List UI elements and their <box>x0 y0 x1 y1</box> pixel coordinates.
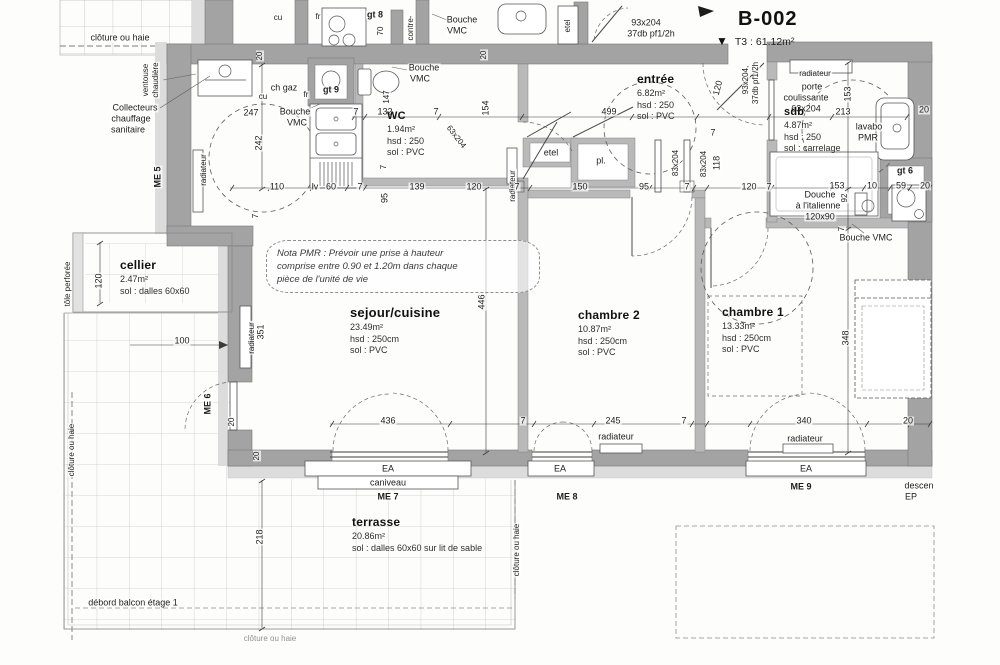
plan-annotation: Bouche <box>408 64 441 73</box>
room-spec: 10.87m² <box>578 324 640 336</box>
nota-pmr-note: Nota PMR : Prévoir une prise à hauteurco… <box>266 240 540 293</box>
room-title: chambre 1 <box>722 305 784 319</box>
plan-annotation: radiateur <box>798 70 832 78</box>
room-spec: hsd : 250 <box>637 100 675 112</box>
plan-annotation: débord balcon étage 1 <box>87 599 179 608</box>
annotation-layer: clôture ou haiecufrgt 870contre-BoucheVM… <box>0 0 1000 665</box>
plan-annotation: lavabo <box>855 123 884 132</box>
plan-annotation: 7 <box>838 226 846 232</box>
plan-annotation: gt 6 <box>896 167 914 176</box>
room-spec: hsd : 250cm <box>578 336 640 348</box>
nota-pmr-line: Nota PMR : Prévoir une prise à hauteur <box>277 247 529 260</box>
plan-annotation: 100 <box>173 337 190 346</box>
plan-annotation: 348 <box>842 329 851 346</box>
plan-annotation: 60 <box>325 183 337 192</box>
plan-annotation: VMC <box>446 27 468 36</box>
plan-annotation: lv <box>311 183 320 192</box>
plan-annotation: EP <box>904 493 918 502</box>
plan-annotation: 7 <box>519 417 526 426</box>
room-spec: sol : PVC <box>387 147 425 159</box>
plan-annotation: 446 <box>478 293 487 310</box>
plan-annotation: 499 <box>600 108 617 117</box>
plan-annotation: chaudière <box>152 61 160 98</box>
plan-annotation: clôture ou haie <box>243 635 297 643</box>
plan-annotation: radiateur <box>786 435 824 444</box>
room-title: entrée <box>637 72 675 86</box>
plan-annotation: EA <box>381 465 395 474</box>
room-label-wc: WC1.94m²hsd : 250sol : PVC <box>387 110 425 159</box>
room-spec: 4.87m² <box>784 120 841 132</box>
plan-annotation: cu <box>273 14 283 22</box>
plan-annotation: 150 <box>571 183 588 192</box>
plan-annotation: 7 <box>709 129 716 138</box>
plan-annotation: 20 <box>480 50 488 61</box>
room-spec: sol : PVC <box>637 111 675 123</box>
plan-annotation: coulissante <box>782 94 829 103</box>
plan-annotation: 70 <box>377 26 385 37</box>
plan-annotation: 7 <box>513 183 520 192</box>
plan-annotation: contre- <box>407 15 415 42</box>
room-spec: hsd : 250 <box>784 132 841 144</box>
plan-annotation: etel <box>543 149 560 158</box>
plan-annotation: ME 8 <box>555 493 578 502</box>
room-spec: 23.49m² <box>350 322 440 334</box>
plan-annotation: caniveau <box>369 479 407 488</box>
plan-annotation: 7 <box>252 213 260 219</box>
room-spec: 6.82m² <box>637 88 675 100</box>
plan-annotation: etel <box>564 19 572 34</box>
room-spec: sol : dalles 60x60 <box>120 286 190 298</box>
room-spec: 2.47m² <box>120 274 190 286</box>
room-spec: hsd : 250cm <box>350 334 440 346</box>
plan-annotation: 120x90 <box>804 213 836 222</box>
room-spec: 13.33m² <box>722 321 784 333</box>
plan-annotation: Collecteurs <box>111 104 158 113</box>
plan-annotation: 110 <box>269 183 285 192</box>
plan-annotation: porte <box>801 83 824 92</box>
plan-annotation: 37db pf1/2h <box>626 30 676 39</box>
plan-annotation: gt 9 <box>322 86 340 95</box>
plan-annotation: 83x204 <box>672 149 680 177</box>
room-label-chambre-2: chambre 210.87m²hsd : 250cmsol : PVC <box>578 308 640 359</box>
room-title: sejour/cuisine <box>350 305 440 320</box>
room-label-sejour-cuisine: sejour/cuisine23.49m²hsd : 250cmsol : PV… <box>350 305 440 357</box>
plan-annotation: Douche <box>803 191 836 200</box>
nota-pmr-line: comprise entre 0.90 et 1.20m dans chaque <box>277 260 529 273</box>
plan-annotation: Bouche <box>446 16 479 25</box>
room-spec: sol : PVC <box>578 347 640 359</box>
floor-plan-sheet: clôture ou haiecufrgt 870contre-BoucheVM… <box>0 0 1000 665</box>
plan-annotation: EA <box>799 465 813 474</box>
plan-annotation: 436 <box>379 417 396 426</box>
room-label-cellier: cellier2.47m²sol : dalles 60x60 <box>120 258 190 297</box>
plan-annotation: 20 <box>919 182 931 191</box>
plan-annotation: 247 <box>242 109 259 118</box>
plan-annotation: Bouche VMC <box>838 234 893 243</box>
plan-annotation: 245 <box>604 417 621 426</box>
plan-annotation: 218 <box>256 528 265 545</box>
triangle-marker: ▼ <box>716 34 728 48</box>
plan-annotation: 83x204 <box>700 150 708 178</box>
plan-annotation: 242 <box>255 134 264 151</box>
plan-annotation: 120 <box>465 183 482 192</box>
nota-pmr-line: pièce de l'unité de vie <box>277 273 529 286</box>
plan-annotation: Bouche <box>279 108 312 117</box>
plan-annotation: à l'italienne <box>795 202 842 211</box>
room-title: terrasse <box>352 515 482 529</box>
plan-annotation: 92 <box>841 193 849 204</box>
plan-annotation: ME 5 <box>154 165 163 188</box>
plan-annotation: radiateur <box>597 433 635 442</box>
room-spec: sol : PVC <box>722 344 784 356</box>
plan-annotation: 340 <box>795 417 812 426</box>
plan-annotation: ME 9 <box>789 483 812 492</box>
room-label-chambre-1: chambre 113.33m²hsd : 250cmsol : PVC <box>722 305 784 356</box>
title-block: B-002 ▼T3 : 61.12m² <box>716 8 797 48</box>
room-title: WC <box>387 110 425 122</box>
plan-annotation: fr <box>303 91 310 99</box>
plan-annotation: 154 <box>482 99 491 116</box>
plan-annotation: PMR <box>857 134 879 143</box>
room-label-sdb: sdb4.87m²hsd : 250sol : carrelage <box>784 106 841 155</box>
room-spec: 20.86m² <box>352 531 482 543</box>
plan-annotation: 7 <box>683 183 690 192</box>
plan-annotation: 93x204 <box>630 19 662 28</box>
plan-annotation: 147 <box>383 89 391 104</box>
plan-annotation: 120 <box>95 272 104 289</box>
plan-annotation: 59 <box>895 182 907 191</box>
unit-code: B-002 <box>738 8 797 31</box>
plan-annotation: 351 <box>257 323 266 340</box>
plan-annotation: 7 <box>352 108 359 117</box>
plan-annotation: 7 <box>380 164 388 170</box>
plan-annotation: 20 <box>918 106 930 115</box>
unit-type: T3 : 61.12m² <box>735 36 795 48</box>
plan-annotation: clôture ou haie <box>68 423 76 477</box>
room-spec: hsd : 250cm <box>722 333 784 345</box>
plan-annotation: sanitaire <box>110 126 146 135</box>
plan-annotation: VMC <box>286 119 308 128</box>
plan-annotation: 20 <box>256 51 264 62</box>
plan-annotation: 120 <box>740 183 757 192</box>
plan-annotation: ME 6 <box>204 392 213 415</box>
plan-annotation: 95 <box>381 192 390 204</box>
room-title: sdb <box>784 106 841 118</box>
room-label-terrasse: terrasse20.86m²sol : dalles 60x60 sur li… <box>352 515 482 554</box>
plan-annotation: clôture ou haie <box>513 523 521 577</box>
plan-annotation: clôture ou haie <box>89 34 150 43</box>
plan-annotation: descen <box>903 482 934 491</box>
plan-annotation: 20 <box>228 417 236 428</box>
plan-annotation: 93x204, <box>742 65 750 95</box>
plan-annotation: 7 <box>680 417 687 426</box>
plan-annotation: 7 <box>356 183 363 192</box>
plan-annotation: 95 <box>638 183 650 192</box>
plan-annotation: gt 8 <box>366 11 384 20</box>
room-spec: sol : PVC <box>350 345 440 357</box>
plan-annotation: EA <box>553 465 567 474</box>
plan-annotation: ME 7 <box>376 493 399 502</box>
room-label-entree: entrée6.82m²hsd : 250sol : PVC <box>637 72 675 123</box>
plan-annotation: 118 <box>713 155 722 171</box>
plan-annotation: fr <box>315 13 322 21</box>
plan-annotation: cu <box>258 93 268 101</box>
plan-annotation: 120 <box>711 79 724 98</box>
plan-annotation: 153 <box>844 85 853 102</box>
room-spec: sol : dalles 60x60 sur lit de sable <box>352 543 482 555</box>
plan-annotation: 63x204 <box>444 123 468 150</box>
plan-annotation: 20 <box>253 451 261 462</box>
plan-annotation: ch gaz <box>270 84 299 93</box>
plan-annotation: 7 <box>432 108 439 117</box>
plan-annotation: 139 <box>408 183 425 192</box>
room-spec: sol : carrelage <box>784 143 841 155</box>
plan-annotation: pl. <box>595 157 607 166</box>
room-title: chambre 2 <box>578 308 640 322</box>
plan-annotation: 7 <box>765 183 772 192</box>
plan-annotation: chauffage <box>110 115 151 124</box>
plan-annotation: VMC <box>409 75 431 84</box>
room-spec: 1.94m² <box>387 124 425 136</box>
plan-annotation: ventouse <box>142 63 150 97</box>
plan-annotation: 37db pf1/2h <box>752 61 760 105</box>
room-spec: hsd : 250 <box>387 136 425 148</box>
plan-annotation: 20 <box>902 417 914 426</box>
room-title: cellier <box>120 258 190 272</box>
plan-annotation: 10 <box>866 182 878 191</box>
plan-annotation: radiateur <box>200 153 208 187</box>
plan-annotation: tôle perforée <box>64 261 72 308</box>
